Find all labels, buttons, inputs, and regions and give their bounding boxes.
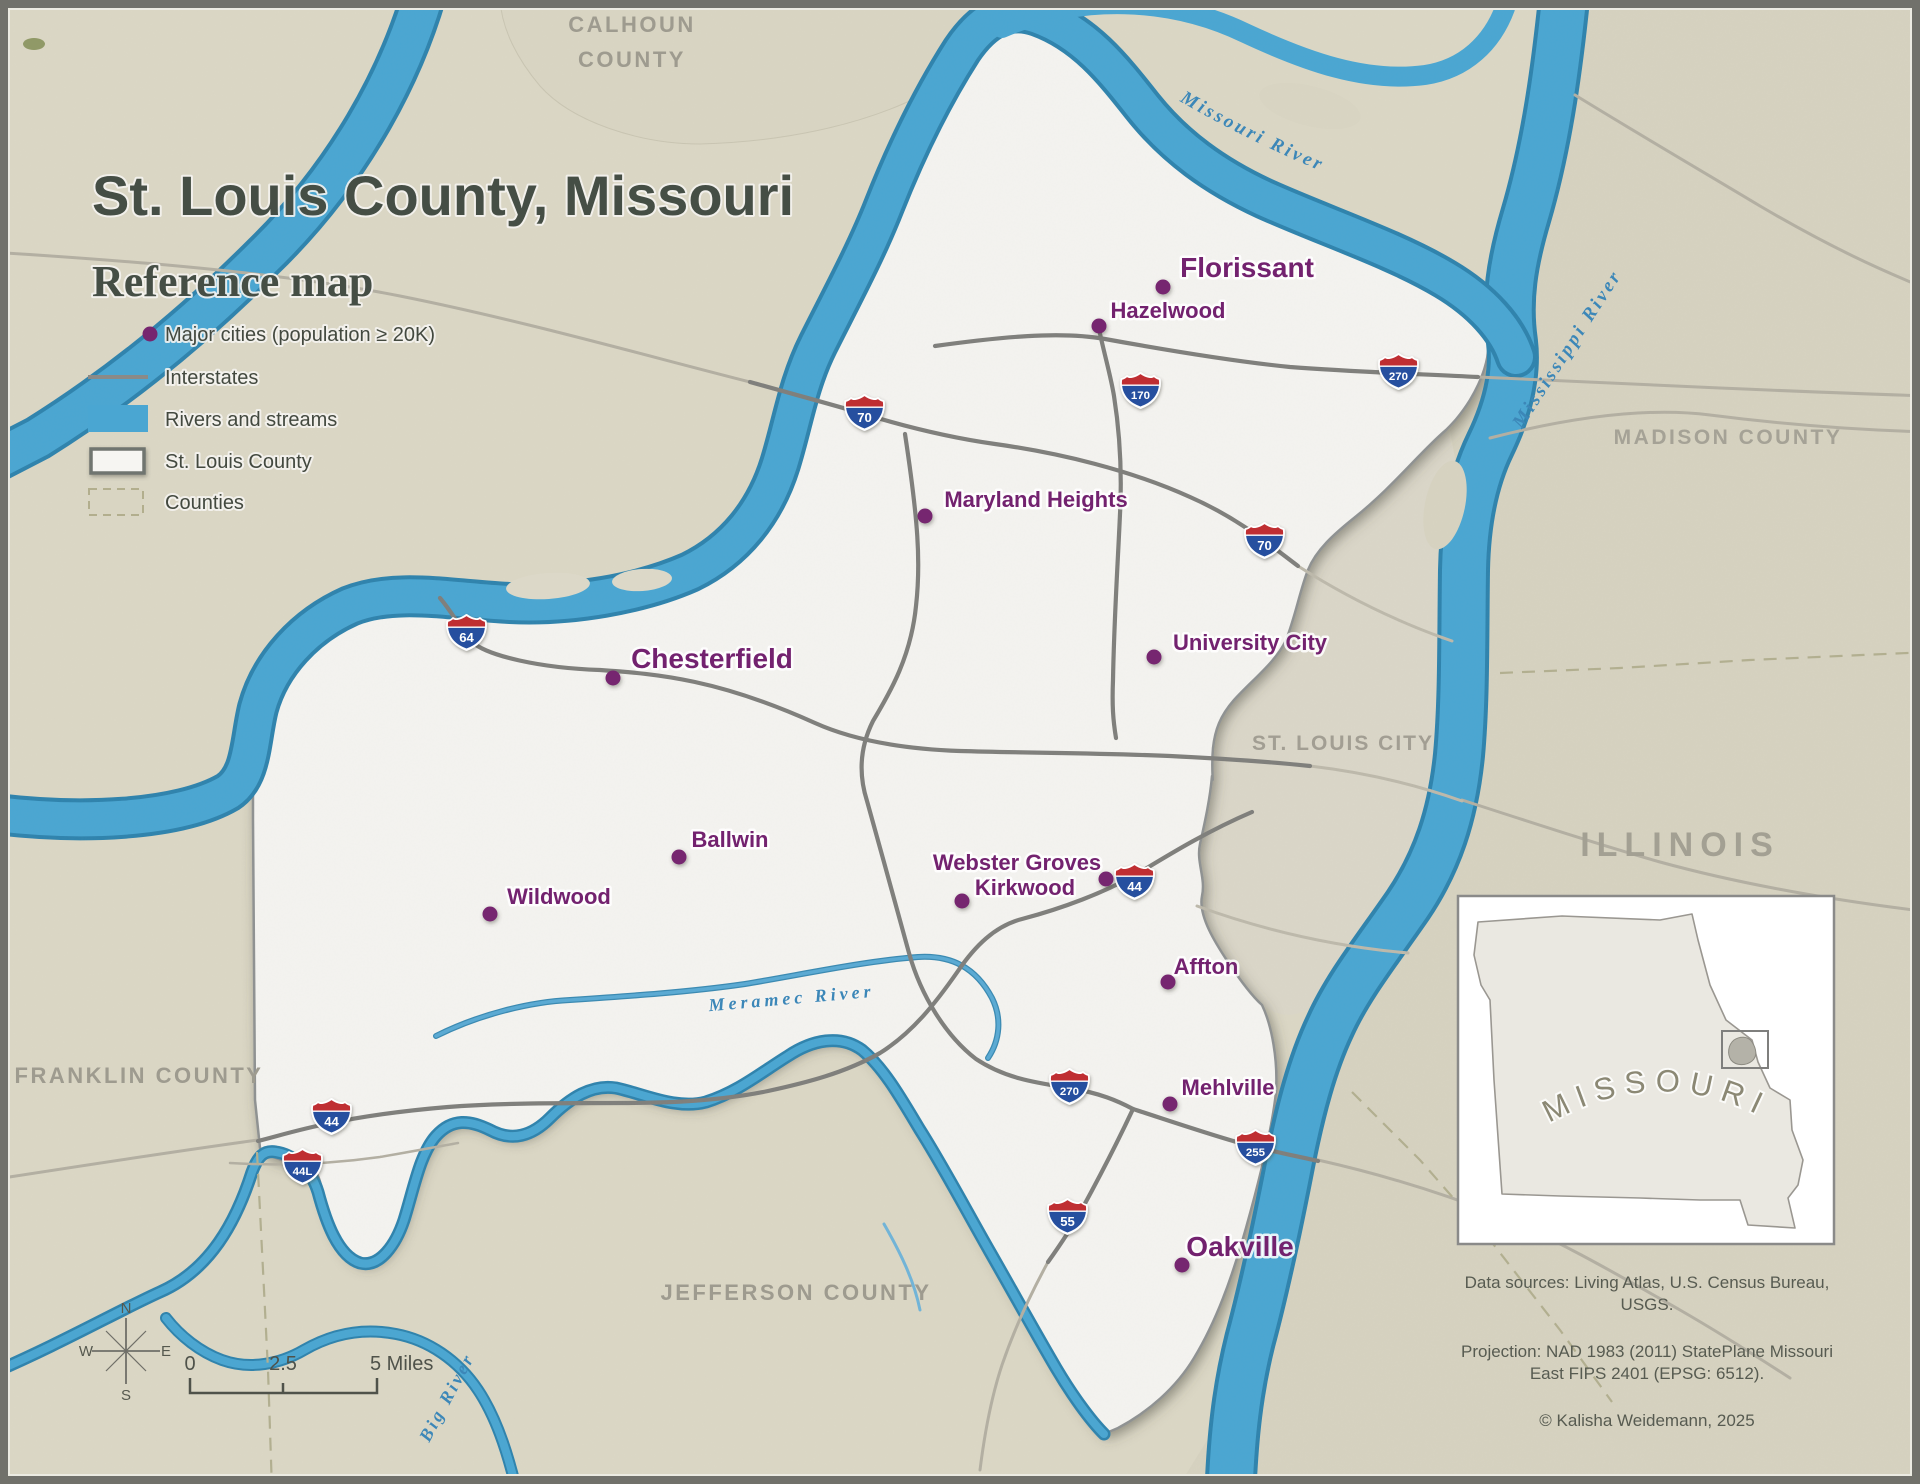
legend-county-symbol [91,449,144,473]
svg-text:70: 70 [857,410,872,425]
page-subtitle: Reference map [92,257,373,306]
svg-text:270: 270 [1060,1086,1079,1098]
svg-text:Florissant: Florissant [1180,252,1314,283]
legend-city-symbol [143,327,158,342]
svg-text:44: 44 [324,1114,339,1129]
svg-text:Webster Groves: Webster Groves [933,850,1101,875]
legend-rivers-symbol [88,405,148,432]
inset-map: MISSOURI [1458,896,1834,1244]
compass-s: S [121,1387,131,1404]
label-calhoun-county-2: COUNTY [578,47,686,72]
page-title: St. Louis County, Missouri [92,164,794,227]
scale-middle: 2.5 [269,1353,297,1375]
map-canvas: CALHOUN COUNTY MADISON COUNTY ST. LOUIS … [0,0,1920,1484]
svg-text:55: 55 [1060,1214,1075,1229]
legend-city-label: Major cities (population ≥ 20K) [165,324,435,346]
svg-text:Wildwood: Wildwood [507,884,611,909]
reference-map: CALHOUN COUNTY MADISON COUNTY ST. LOUIS … [0,0,1920,1484]
svg-text:70: 70 [1257,538,1272,553]
svg-text:44: 44 [1127,879,1142,894]
svg-text:University City: University City [1173,630,1328,655]
svg-text:44L: 44L [293,1166,313,1178]
credits-projection-2: East FIPS 2401 (EPSG: 6512). [1530,1364,1764,1383]
credits-projection-1: Projection: NAD 1983 (2011) StatePlane M… [1461,1342,1833,1361]
svg-text:270: 270 [1389,371,1408,383]
label-madison-county: MADISON COUNTY [1614,426,1843,449]
label-st-louis-city: ST. LOUIS CITY [1252,732,1434,755]
svg-text:Affton: Affton [1174,954,1239,979]
svg-text:Ballwin: Ballwin [691,827,768,852]
label-illinois: ILLINOIS [1580,826,1780,864]
label-calhoun-county: CALHOUN [568,12,696,37]
svg-text:Hazelwood: Hazelwood [1111,298,1226,323]
inset-county-highlight-shape [1729,1037,1756,1064]
legend-rivers-label: Rivers and streams [165,409,337,431]
label-jefferson-county: JEFFERSON COUNTY [660,1280,931,1305]
svg-text:170: 170 [1131,390,1150,402]
compass-e: E [161,1343,171,1360]
credits-copyright: © Kalisha Weidemann, 2025 [1539,1411,1754,1430]
compass-n: N [121,1300,132,1317]
svg-text:Mehlville: Mehlville [1182,1075,1275,1100]
svg-text:Chesterfield: Chesterfield [631,643,793,674]
legend-counties-symbol [89,489,143,515]
svg-text:Oakville: Oakville [1186,1231,1293,1262]
credits-block: Data sources: Living Atlas, U.S. Census … [1452,1272,1842,1432]
svg-text:255: 255 [1246,1147,1266,1159]
svg-text:64: 64 [459,630,474,645]
svg-text:Kirkwood: Kirkwood [975,875,1075,900]
credits-sources-2: USGS. [1621,1295,1674,1314]
legend-county-label: St. Louis County [165,451,312,473]
credits-sources-1: Data sources: Living Atlas, U.S. Census … [1465,1273,1830,1292]
scale-start: 0 [184,1353,195,1375]
compass-w: W [79,1343,94,1360]
scale-end: 5 Miles [370,1353,433,1375]
svg-text:Maryland Heights: Maryland Heights [944,487,1127,512]
legend-interstate-label: Interstates [165,367,258,389]
label-franklin-county: FRANKLIN COUNTY [15,1063,264,1088]
legend-counties-label: Counties [165,492,244,514]
